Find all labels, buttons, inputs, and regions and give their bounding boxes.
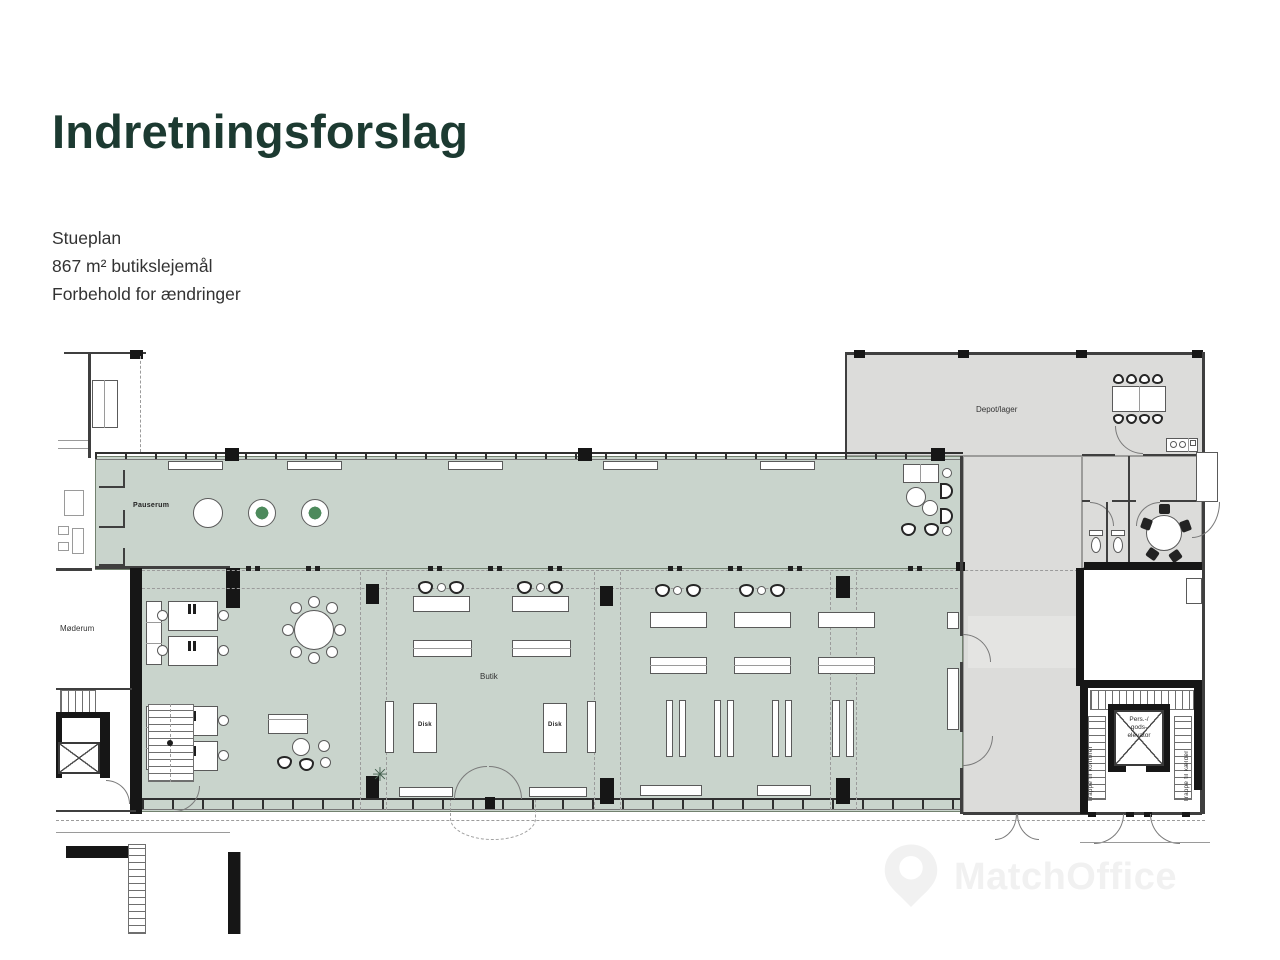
wall-depot-top [845, 352, 1205, 355]
partition-wall [1128, 456, 1130, 502]
window-shelf [529, 787, 587, 797]
gondola-divider [818, 665, 875, 666]
location-pin-icon [880, 842, 942, 912]
grid-dashed-line [142, 570, 1078, 571]
office-chair [157, 645, 168, 656]
office-chair [218, 750, 229, 761]
partition-wall [1082, 454, 1115, 456]
wall-recess [947, 612, 959, 629]
side-table [536, 583, 545, 592]
side-table [942, 468, 952, 478]
column [836, 778, 850, 804]
partition-wall [99, 486, 125, 488]
wall-core [1084, 562, 1202, 570]
meeting-chair [308, 596, 320, 608]
display-rack [587, 701, 596, 753]
column [1076, 350, 1087, 358]
clothes-rack [679, 700, 686, 757]
window-panel [92, 380, 118, 428]
office-chair [218, 715, 229, 726]
column [600, 586, 613, 606]
exterior-line [58, 448, 88, 449]
side-table [437, 583, 446, 592]
partition-wall [1112, 500, 1136, 502]
side-table [942, 526, 952, 536]
door-stub [1182, 812, 1190, 817]
shelf-divider [146, 643, 162, 644]
side-table [757, 586, 766, 595]
monitor [193, 641, 196, 651]
window-shelf [757, 785, 811, 796]
display-table [413, 596, 470, 612]
stairs-label-left: Trappe til kontorer [1088, 716, 1094, 802]
display-table [734, 612, 791, 628]
exterior-wall [228, 852, 240, 934]
wall-pauserum-bottom [95, 566, 230, 569]
conference-chair [1126, 374, 1137, 384]
meeting-table [294, 610, 334, 650]
toilet-cistern [1089, 530, 1103, 536]
round-table [193, 498, 223, 528]
exterior-fixture [64, 490, 84, 516]
wall-retail-left [130, 568, 142, 814]
elevator-label: Pers.-/ gods- elevator [1115, 716, 1163, 740]
wall-retail-right [960, 768, 963, 814]
door-swing [1017, 814, 1039, 840]
column [958, 350, 969, 358]
watermark-text: MatchOffice [954, 856, 1177, 899]
grid-dashed-line [360, 572, 361, 810]
column [130, 350, 143, 359]
door-swing [1094, 814, 1124, 844]
monitor [188, 641, 191, 651]
window-mullion [104, 380, 105, 428]
radiator [1186, 578, 1202, 604]
grid-tick [788, 566, 802, 571]
stairs-arrow-dot [167, 740, 173, 746]
partition-wall [99, 564, 125, 566]
stairs-run [60, 690, 96, 714]
room-label-pauserum: Pauserum [133, 502, 169, 509]
door-swing [995, 814, 1017, 840]
window-bench [760, 461, 815, 470]
service-counter-disk: Disk [543, 703, 567, 753]
floor-plan-page: Indretningsforslag Stueplan 867 m² butik… [0, 0, 1280, 960]
coffee-table [292, 738, 310, 756]
coffee-table [922, 500, 938, 516]
wall-depot-left [845, 354, 847, 456]
site-dashed-line [56, 820, 1205, 821]
side-table [673, 586, 682, 595]
window-bench [448, 461, 503, 470]
table-divider [1139, 386, 1140, 412]
external-lift [1196, 452, 1218, 502]
grid-tick [668, 566, 682, 571]
window-bench [603, 461, 658, 470]
meeting-chair [290, 646, 302, 658]
window-shelf [399, 787, 453, 797]
exterior-wall [66, 846, 134, 858]
exterior-line [58, 440, 88, 441]
partition-wall [99, 526, 125, 528]
staff-chair [1159, 504, 1170, 514]
clothes-rack [832, 700, 840, 757]
exterior-fixture [58, 542, 69, 551]
column [600, 778, 614, 804]
grid-dashed-line [830, 572, 831, 810]
door-swing [1150, 814, 1180, 844]
wall-core [1076, 568, 1084, 686]
subtitle-disclaimer: Forbehold for ændringer [52, 280, 241, 308]
grid-tick [246, 566, 260, 571]
exterior-stairs [128, 844, 146, 934]
elevator-label-line3: elevator [1115, 732, 1163, 740]
gondola-divider [734, 665, 791, 666]
plan-subtitle: Stueplan 867 m² butikslejemål Forbehold … [52, 224, 241, 308]
display-table [650, 612, 707, 628]
display-rack [385, 701, 394, 753]
wall-core [1080, 680, 1202, 688]
plant-icon: ✳ [372, 766, 388, 785]
plant-table [248, 499, 276, 527]
sofa [903, 464, 939, 483]
clothes-rack [772, 700, 779, 757]
counter-label-disk: Disk [418, 722, 432, 728]
partition-wall [1143, 454, 1202, 456]
window-bench [168, 461, 223, 470]
monitor [188, 604, 191, 614]
column [931, 448, 945, 461]
counter-divider [1188, 438, 1189, 452]
clothes-rack [727, 700, 734, 757]
counter-label-disk: Disk [548, 722, 562, 728]
elevator-wall [1164, 704, 1170, 772]
grid-dashed-line [594, 572, 595, 810]
wall-stairblock-bottom [56, 810, 136, 812]
grid-tick [548, 566, 562, 571]
wall-moderum-top [56, 568, 92, 571]
elevator-wall [1146, 766, 1170, 772]
sofa-divider [920, 464, 921, 483]
grid-tick [488, 566, 502, 571]
clothes-rack [666, 700, 673, 757]
elevator-label-line1: Pers.-/ [1115, 716, 1163, 724]
door-swing [106, 780, 130, 804]
column [836, 576, 850, 598]
exterior-line [56, 832, 230, 833]
grid-tick [728, 566, 742, 571]
grid-dashed-line [620, 572, 621, 810]
shelf-divider [146, 622, 162, 623]
elevator-shaft-small [58, 742, 100, 774]
wall-core [1194, 686, 1202, 790]
subtitle-floor: Stueplan [52, 224, 241, 252]
room-label-depot: Depot/lager [976, 405, 1017, 414]
partition-wall [1106, 502, 1108, 568]
clothes-rack [714, 700, 721, 757]
stairs-label-right: Trappe til kælder [1184, 716, 1190, 802]
office-chair [218, 610, 229, 621]
wall-recess [947, 668, 959, 730]
display-table [512, 596, 569, 612]
conference-chair [1152, 374, 1163, 384]
partition-wall [1082, 500, 1090, 502]
page-title: Indretningsforslag [52, 104, 468, 159]
grid-tick [306, 566, 320, 571]
grid-tick [428, 566, 442, 571]
conference-chair [1139, 374, 1150, 384]
toilet-icon [1113, 537, 1123, 553]
door-swing [1192, 502, 1220, 538]
zone-retail-strip [95, 456, 963, 570]
meeting-chair [282, 624, 294, 636]
window-shelf [640, 785, 702, 796]
meeting-chair [326, 646, 338, 658]
grid-dashed-line [856, 572, 857, 810]
elevator-label-line2: gods- [1115, 724, 1163, 732]
clothes-rack [785, 700, 792, 757]
plant-table [301, 499, 329, 527]
column [225, 448, 239, 461]
wall-retail-right [960, 456, 963, 636]
sofa [268, 714, 308, 734]
column [854, 350, 865, 358]
wall-wing-left [88, 352, 91, 458]
watermark: MatchOffice [880, 842, 1177, 912]
meeting-chair [326, 602, 338, 614]
exterior-fixture [58, 526, 69, 535]
wall-core [1200, 790, 1202, 814]
exterior-fixture [72, 528, 84, 554]
gondola-divider [512, 648, 571, 649]
sink-basin [1179, 441, 1186, 448]
monitor [193, 604, 196, 614]
meeting-chair [308, 652, 320, 664]
meeting-chair [290, 602, 302, 614]
door-stub [1126, 812, 1134, 817]
column [366, 584, 379, 604]
grid-dashed-line [140, 356, 141, 452]
sink-basin [1170, 441, 1177, 448]
clothes-rack [846, 700, 854, 757]
stove-icon [1190, 440, 1196, 446]
room-label-butik: Butik [480, 672, 498, 681]
wall-stairblock [100, 716, 110, 778]
toilet-cistern [1111, 530, 1125, 536]
conference-chair [1113, 374, 1124, 384]
meeting-chair [334, 624, 346, 636]
column [578, 448, 592, 461]
gondola-divider [650, 665, 707, 666]
exterior-line [240, 852, 241, 934]
toilet-icon [1091, 537, 1101, 553]
partition-wall [1128, 502, 1130, 568]
service-counter-disk: Disk [413, 703, 437, 753]
grid-tick [908, 566, 922, 571]
office-chair [157, 610, 168, 621]
side-table [320, 757, 331, 768]
side-table [318, 740, 330, 752]
wall-core [1080, 680, 1088, 814]
gondola-divider [413, 648, 472, 649]
sofa-back-line [268, 719, 308, 720]
room-label-moderum: Møderum [60, 624, 94, 633]
wall-retail-right [960, 662, 963, 732]
display-table [818, 612, 875, 628]
wall-outer-right [1202, 352, 1205, 814]
subtitle-area: 867 m² butikslejemål [52, 252, 241, 280]
office-chair [218, 645, 229, 656]
window-bench [287, 461, 342, 470]
elevator-wall [1108, 766, 1126, 772]
